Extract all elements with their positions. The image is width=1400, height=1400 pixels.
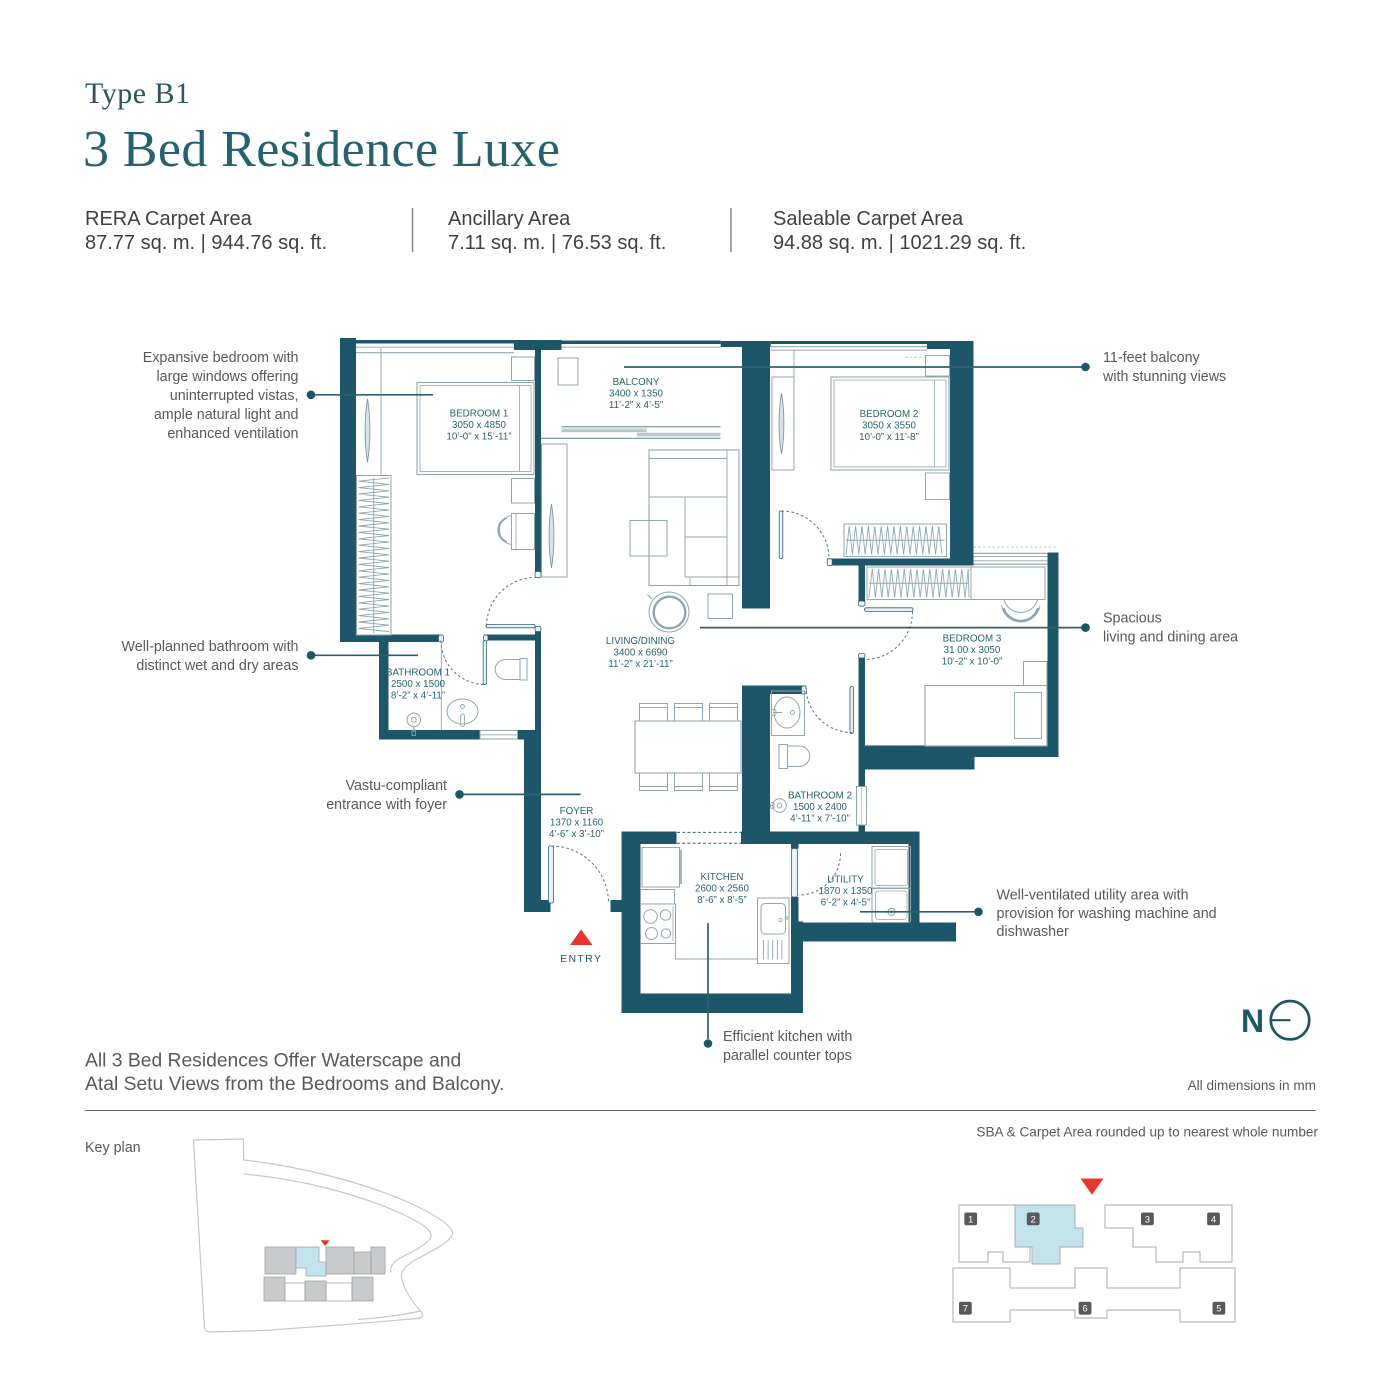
svg-text:parallel counter tops: parallel counter tops bbox=[723, 1048, 852, 1064]
svg-text:dishwasher: dishwasher bbox=[997, 924, 1070, 940]
svg-text:Well-planned bathroom with: Well-planned bathroom with bbox=[122, 639, 299, 655]
svg-text:N: N bbox=[1241, 1003, 1264, 1039]
svg-text:Type B1: Type B1 bbox=[85, 77, 191, 110]
svg-text:Efficient kitchen with: Efficient kitchen with bbox=[723, 1029, 852, 1045]
svg-text:2600 x 2560: 2600 x 2560 bbox=[695, 884, 749, 895]
svg-text:KITCHEN: KITCHEN bbox=[700, 872, 743, 883]
svg-text:entrance with foyer: entrance with foyer bbox=[326, 797, 447, 813]
svg-text:BALCONY: BALCONY bbox=[613, 377, 660, 388]
svg-text:RERA Carpet Area: RERA Carpet Area bbox=[85, 208, 253, 230]
svg-text:BEDROOM 3: BEDROOM 3 bbox=[943, 634, 1002, 645]
svg-text:5: 5 bbox=[1216, 1304, 1221, 1315]
svg-text:2500 x 1500: 2500 x 1500 bbox=[391, 679, 445, 690]
svg-text:SBA & Carpet Area rounded up t: SBA & Carpet Area rounded up to nearest … bbox=[976, 1125, 1318, 1140]
svg-text:1500 x 2400: 1500 x 2400 bbox=[793, 802, 847, 813]
svg-text:4’-11” x 7’-10”: 4’-11” x 7’-10” bbox=[790, 814, 850, 825]
svg-text:provision for washing machine: provision for washing machine and bbox=[997, 906, 1217, 922]
svg-text:living and dining area: living and dining area bbox=[1103, 630, 1238, 646]
svg-text:11’-2” x 4’-5”: 11’-2” x 4’-5” bbox=[609, 400, 663, 411]
svg-text:10’-0” x 11’-8”: 10’-0” x 11’-8” bbox=[859, 432, 919, 443]
svg-text:Ancillary Area: Ancillary Area bbox=[448, 208, 571, 230]
svg-text:All dimensions in mm: All dimensions in mm bbox=[1188, 1078, 1316, 1093]
svg-text:1: 1 bbox=[968, 1214, 973, 1225]
svg-text:94.88 sq. m. | 1021.29 sq. ft.: 94.88 sq. m. | 1021.29 sq. ft. bbox=[773, 232, 1026, 254]
svg-text:uninterrupted vistas,: uninterrupted vistas, bbox=[170, 388, 299, 404]
svg-text:FOYER: FOYER bbox=[560, 806, 594, 817]
svg-text:6’-2” x 4’-5”: 6’-2” x 4’-5” bbox=[821, 898, 871, 909]
svg-text:87.77 sq. m. | 944.76 sq. ft.: 87.77 sq. m. | 944.76 sq. ft. bbox=[85, 232, 327, 254]
svg-text:BATHROOM 2: BATHROOM 2 bbox=[788, 791, 852, 802]
svg-text:7.11 sq. m. | 76.53 sq. ft.: 7.11 sq. m. | 76.53 sq. ft. bbox=[448, 232, 666, 254]
svg-text:BEDROOM 1: BEDROOM 1 bbox=[450, 409, 509, 420]
svg-text:ample natural light and: ample natural light and bbox=[154, 407, 299, 423]
svg-text:7: 7 bbox=[963, 1304, 968, 1315]
svg-text:All 3 Bed Residences Offer Wat: All 3 Bed Residences Offer Waterscape an… bbox=[85, 1051, 461, 1072]
svg-text:4: 4 bbox=[1211, 1214, 1216, 1225]
svg-text:BEDROOM 2: BEDROOM 2 bbox=[860, 409, 919, 420]
svg-text:3: 3 bbox=[1145, 1214, 1150, 1225]
svg-text:3050 x 3550: 3050 x 3550 bbox=[862, 421, 916, 432]
svg-text:distinct wet and dry areas: distinct wet and dry areas bbox=[136, 658, 298, 674]
svg-text:3400 x 6690: 3400 x 6690 bbox=[614, 648, 668, 659]
svg-text:3 Bed Residence Luxe: 3 Bed Residence Luxe bbox=[83, 121, 560, 178]
svg-text:UTILITY: UTILITY bbox=[827, 875, 864, 886]
svg-text:3400 x 1350: 3400 x 1350 bbox=[609, 389, 663, 400]
svg-text:8’-6” x 8’-5”: 8’-6” x 8’-5” bbox=[697, 895, 747, 906]
svg-text:11-feet balcony: 11-feet balcony bbox=[1103, 350, 1201, 366]
svg-text:2: 2 bbox=[1031, 1214, 1036, 1225]
svg-text:Saleable Carpet Area: Saleable Carpet Area bbox=[773, 208, 964, 230]
svg-text:BATHROOM 1: BATHROOM 1 bbox=[386, 668, 450, 679]
svg-text:Expansive bedroom with: Expansive bedroom with bbox=[143, 350, 299, 366]
svg-text:Key plan: Key plan bbox=[85, 1140, 141, 1156]
svg-text:1870 x 1350: 1870 x 1350 bbox=[819, 886, 873, 897]
svg-text:ENTRY: ENTRY bbox=[560, 953, 602, 965]
svg-text:6: 6 bbox=[1082, 1304, 1087, 1315]
svg-text:10’-0” x 15’-11”: 10’-0” x 15’-11” bbox=[446, 432, 511, 443]
svg-text:large windows offering: large windows offering bbox=[157, 369, 299, 385]
svg-text:Spacious: Spacious bbox=[1103, 611, 1162, 627]
svg-text:4’-6” x 3’-10”: 4’-6” x 3’-10” bbox=[549, 829, 604, 840]
svg-text:Vastu-compliant: Vastu-compliant bbox=[346, 778, 447, 794]
svg-text:Well-ventilated utility area w: Well-ventilated utility area with bbox=[997, 888, 1189, 904]
svg-text:with stunning views: with stunning views bbox=[1102, 369, 1226, 385]
svg-text:enhanced ventilation: enhanced ventilation bbox=[167, 426, 298, 442]
svg-text:3050 x 4850: 3050 x 4850 bbox=[452, 420, 506, 431]
svg-text:LIVING/DINING: LIVING/DINING bbox=[606, 636, 675, 647]
svg-text:10’-2” x 10’-0”: 10’-2” x 10’-0” bbox=[942, 657, 1002, 668]
svg-text:11’-2” x 21’-11”: 11’-2” x 21’-11” bbox=[608, 659, 672, 670]
svg-text:8’-2” x 4’-11”: 8’-2” x 4’-11” bbox=[391, 691, 445, 702]
svg-text:31 00 x 3050: 31 00 x 3050 bbox=[944, 645, 1001, 656]
svg-text:Atal Setu Views from the Bedro: Atal Setu Views from the Bedrooms and Ba… bbox=[85, 1074, 504, 1095]
svg-text:1370 x 1160: 1370 x 1160 bbox=[550, 818, 604, 829]
